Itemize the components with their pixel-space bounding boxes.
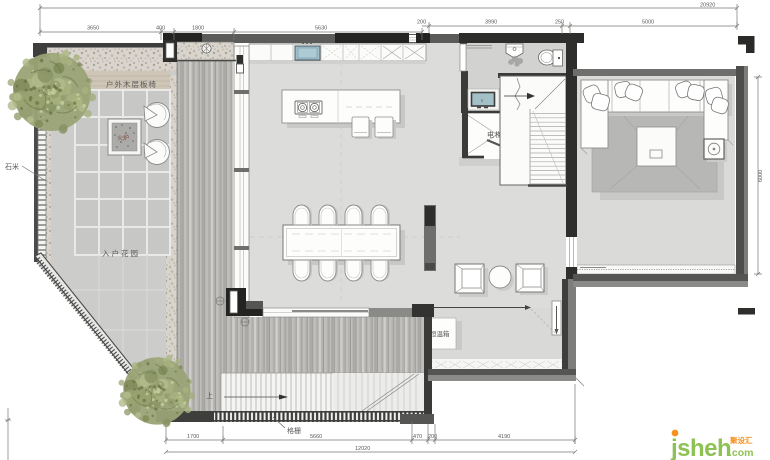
svg-text:.com: .com (729, 447, 754, 459)
svg-text:3990: 3990 (485, 20, 497, 26)
svg-text:火炉: 火炉 (117, 134, 129, 142)
svg-text:格栅: 格栅 (287, 426, 301, 435)
svg-text:20920: 20920 (700, 3, 715, 9)
svg-text:5660: 5660 (310, 434, 322, 440)
svg-text:4190: 4190 (498, 434, 510, 440)
svg-text:3650: 3650 (87, 26, 99, 32)
svg-text:200: 200 (428, 434, 437, 440)
svg-text:5630: 5630 (315, 26, 327, 32)
svg-text:12020: 12020 (355, 446, 370, 452)
svg-text:1800: 1800 (192, 26, 204, 32)
svg-text:200: 200 (417, 20, 426, 26)
svg-text:户外木层板椅: 户外木层板椅 (106, 79, 157, 89)
svg-text:250: 250 (555, 20, 564, 26)
svg-text:470: 470 (413, 434, 422, 440)
svg-text:聚设汇: 聚设汇 (729, 435, 753, 445)
svg-text:1700: 1700 (187, 434, 199, 440)
svg-text:6000: 6000 (758, 170, 764, 182)
svg-text:入户花园: 入户花园 (102, 248, 140, 258)
svg-text:恒温箱: 恒温箱 (430, 329, 450, 338)
svg-text:jsheh: jsheh (670, 435, 731, 460)
svg-text:5000: 5000 (642, 20, 654, 26)
svg-text:400: 400 (156, 26, 165, 32)
svg-text:上: 上 (206, 391, 213, 400)
svg-text:石米: 石米 (5, 162, 19, 171)
